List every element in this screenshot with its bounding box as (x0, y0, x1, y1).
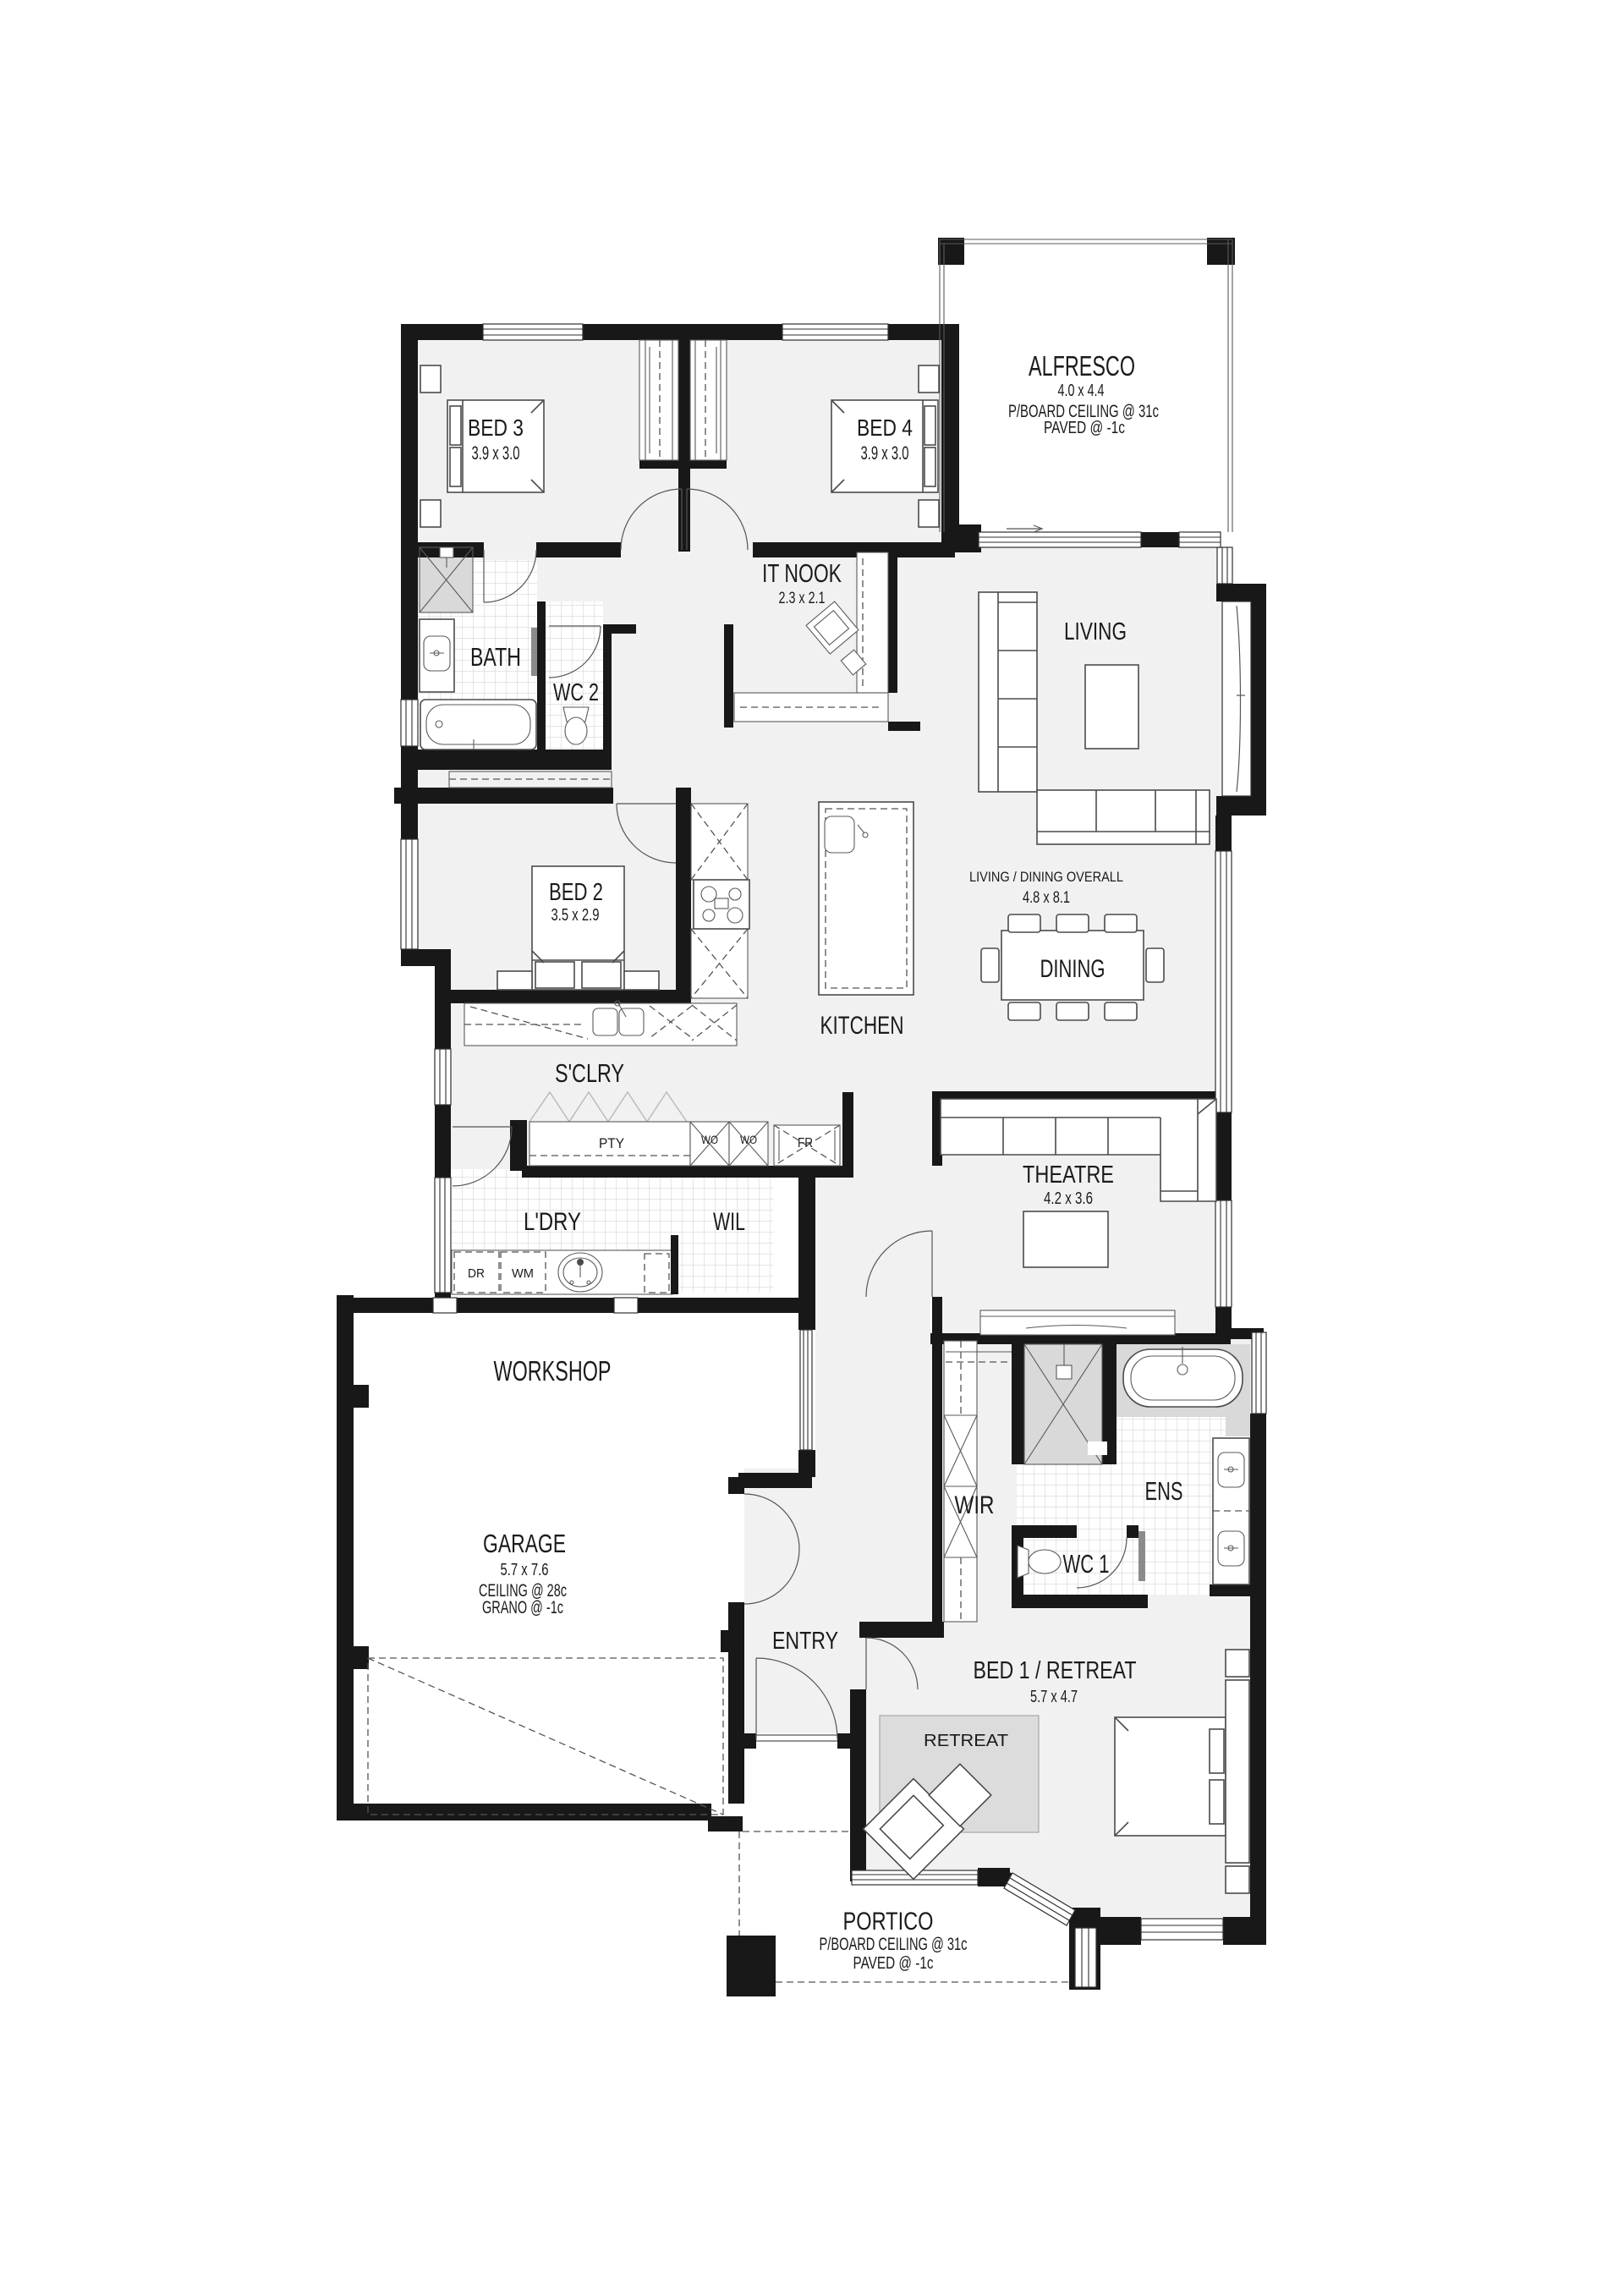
svg-text:4.8 x 8.1: 4.8 x 8.1 (1023, 889, 1070, 907)
svg-text:LIVING: LIVING (1064, 618, 1127, 645)
svg-text:P/BOARD CEILING @ 31c: P/BOARD CEILING @ 31c (820, 1935, 968, 1954)
svg-text:2.3 x 2.1: 2.3 x 2.1 (779, 590, 826, 607)
svg-text:L'DRY: L'DRY (524, 1208, 581, 1236)
svg-text:WM: WM (512, 1266, 534, 1281)
svg-text:ENTRY: ENTRY (772, 1628, 838, 1655)
svg-text:BED 1 / RETREAT: BED 1 / RETREAT (974, 1657, 1137, 1684)
svg-text:4.0 x 4.4: 4.0 x 4.4 (1058, 382, 1105, 400)
svg-text:PORTICO: PORTICO (843, 1908, 934, 1936)
svg-text:WC 1: WC 1 (1063, 1549, 1110, 1579)
svg-text:5.7 x 7.6: 5.7 x 7.6 (501, 1561, 549, 1579)
svg-text:BED 4: BED 4 (857, 415, 913, 441)
svg-text:3.9 x 3.0: 3.9 x 3.0 (472, 442, 520, 464)
svg-text:WIL: WIL (713, 1208, 745, 1236)
svg-text:3.9 x 3.0: 3.9 x 3.0 (861, 442, 909, 464)
svg-text:PAVED @ -1c: PAVED @ -1c (1044, 419, 1125, 437)
svg-text:WC 2: WC 2 (553, 679, 599, 706)
svg-text:THEATRE: THEATRE (1023, 1161, 1114, 1189)
svg-text:4.2 x 3.6: 4.2 x 3.6 (1044, 1189, 1093, 1208)
svg-text:FR: FR (798, 1136, 813, 1150)
svg-text:BED 2: BED 2 (549, 879, 603, 906)
svg-text:PAVED @ -1c: PAVED @ -1c (853, 1954, 934, 1973)
svg-text:BATH: BATH (470, 642, 521, 672)
svg-text:WO: WO (701, 1133, 718, 1146)
svg-text:BED 3: BED 3 (468, 415, 524, 441)
svg-text:KITCHEN: KITCHEN (820, 1012, 904, 1040)
svg-text:WO: WO (740, 1133, 757, 1146)
svg-text:IT NOOK: IT NOOK (762, 558, 842, 588)
svg-text:PTY: PTY (599, 1135, 624, 1151)
svg-text:S'CLRY: S'CLRY (555, 1058, 624, 1088)
svg-text:LIVING / DINING OVERALL: LIVING / DINING OVERALL (969, 869, 1123, 885)
svg-text:ENS: ENS (1145, 1476, 1183, 1506)
svg-text:DR: DR (468, 1266, 485, 1281)
svg-text:GRANO @ -1c: GRANO @ -1c (482, 1598, 563, 1617)
svg-text:DINING: DINING (1040, 955, 1106, 983)
svg-text:GARAGE: GARAGE (483, 1529, 566, 1558)
svg-text:RETREAT: RETREAT (924, 1732, 1008, 1750)
svg-text:3.5 x 2.9: 3.5 x 2.9 (551, 906, 600, 925)
svg-text:WIR: WIR (955, 1491, 995, 1519)
svg-text:5.7 x 4.7: 5.7 x 4.7 (1030, 1688, 1078, 1706)
svg-text:WORKSHOP: WORKSHOP (494, 1355, 612, 1387)
svg-text:ALFRESCO: ALFRESCO (1029, 350, 1135, 382)
